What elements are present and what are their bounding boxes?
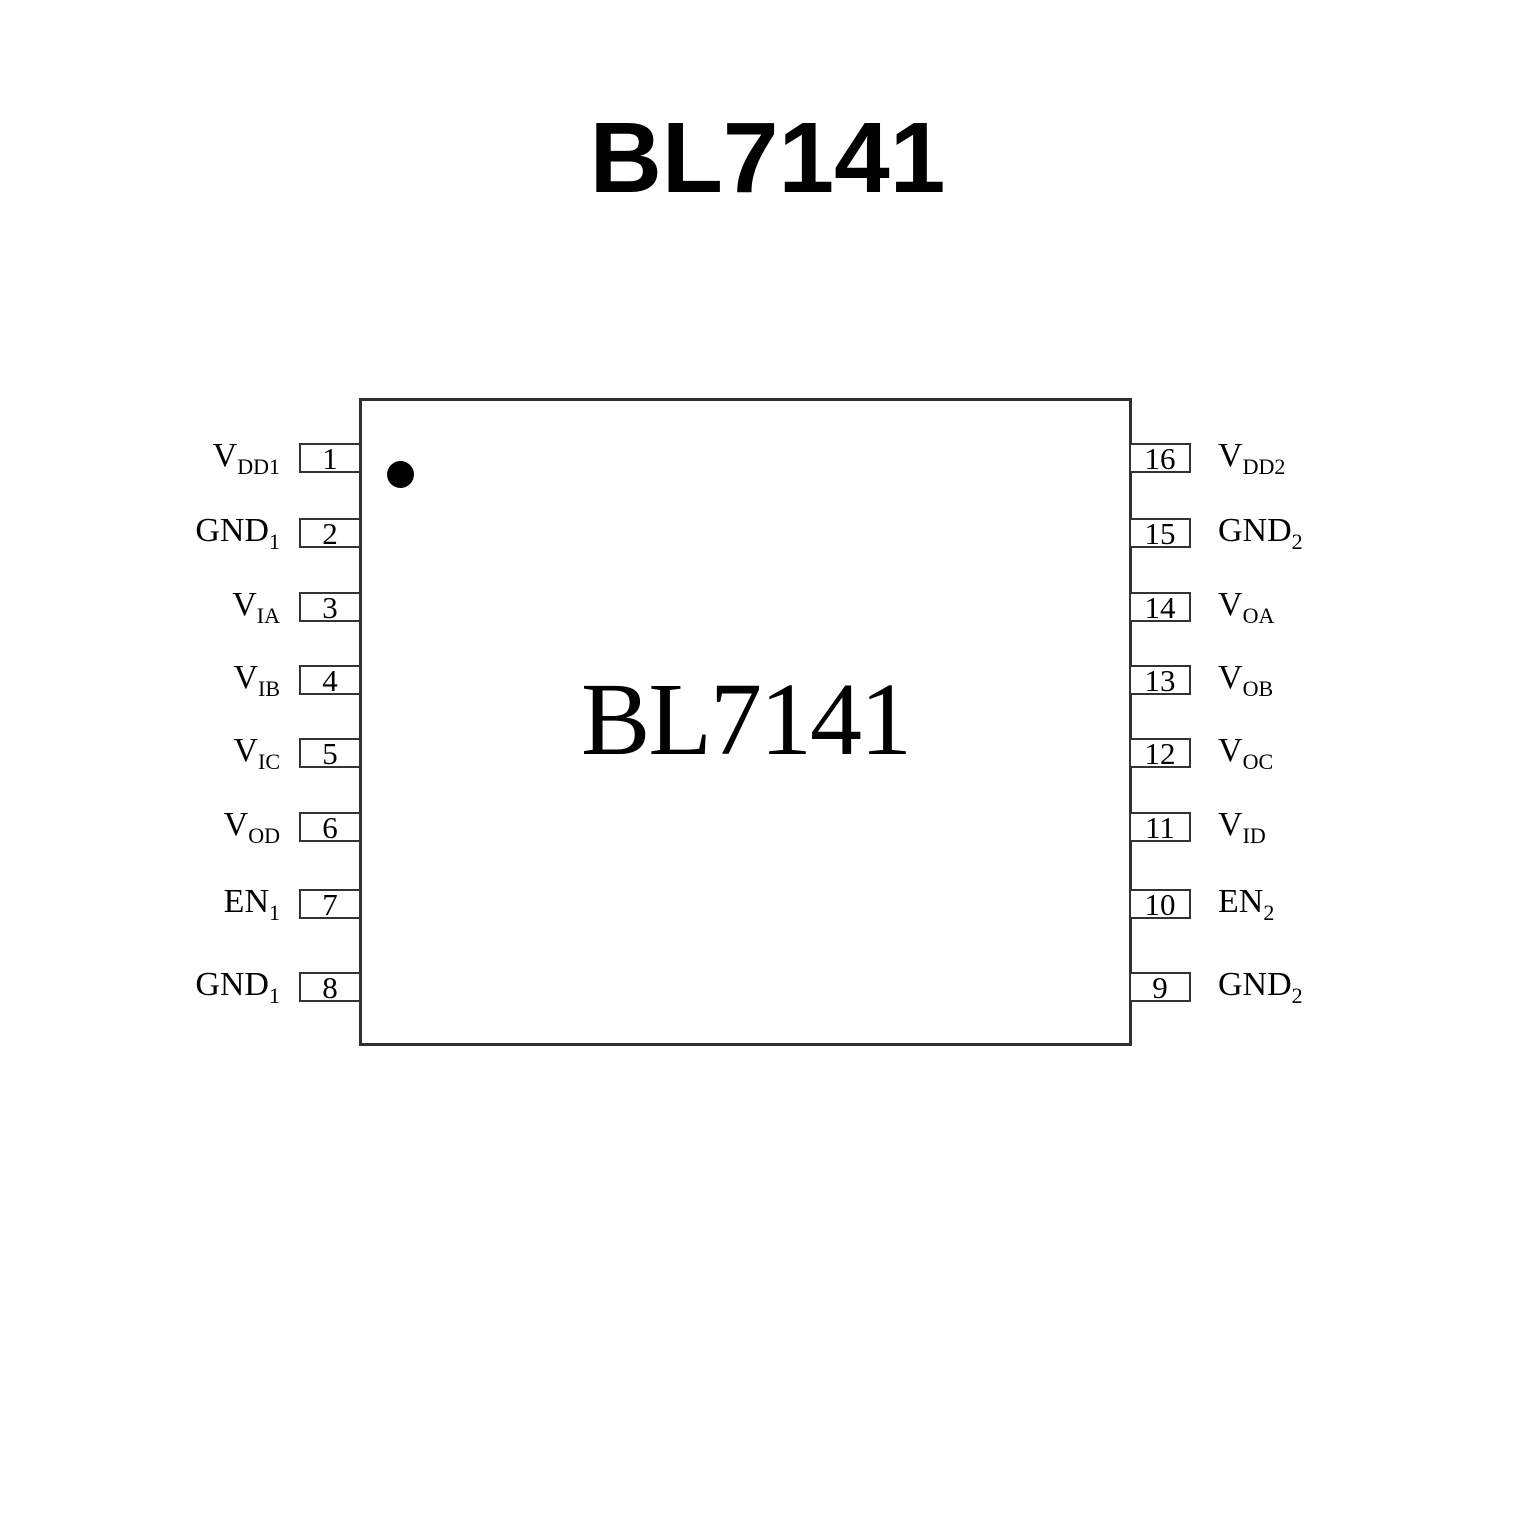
pin-name: GND1 [195,514,280,553]
pin-name-sub: OA [1243,602,1275,627]
pin-number-box: 7 [299,889,361,919]
pin-number: 5 [322,738,338,769]
pin-name-main: V [1218,806,1243,843]
pin-name: VIB [233,661,280,700]
pin-row-1: VDD1 1 [0,443,361,473]
pin-number: 14 [1145,592,1176,623]
pin-name-main: GND [195,966,269,1003]
pin-name: VOB [1218,661,1273,700]
pin-name: GND2 [1218,514,1303,553]
pin-number-box: 1 [299,443,361,473]
pin-name-main: V [1218,732,1243,769]
pin-name-main: V [1218,437,1243,474]
pin-name-main: GND [195,512,269,549]
pin-row-5: VIC 5 [0,738,361,768]
pin-number: 7 [322,889,338,920]
pin-name-sub: 2 [1263,899,1274,924]
pin-row-8: GND1 8 [0,972,361,1002]
pin-name-sub: OB [1243,675,1274,700]
pin-row-11: 11 VID [1129,812,1535,842]
pin-name-main: V [1218,659,1243,696]
pin-number: 9 [1152,972,1168,1003]
pin-row-2: GND1 2 [0,518,361,548]
pin-name: VOC [1218,734,1273,773]
pin-row-6: VOD 6 [0,812,361,842]
pin-number: 11 [1145,812,1175,843]
pin-name: VID [1218,808,1266,847]
pin-name-main: V [232,586,257,623]
pin-number-box: 10 [1129,889,1191,919]
pin-number: 10 [1145,889,1176,920]
pin-name-main: V [1218,586,1243,623]
chip-label: BL7141 [581,668,910,772]
pin-name: VIC [233,734,280,773]
pin-row-16: 16 VDD2 [1129,443,1535,473]
pin-name: VIA [232,588,280,627]
pin-name: VOD [224,808,280,847]
pin-number: 3 [322,592,338,623]
pin-number-box: 13 [1129,665,1191,695]
pin-number-box: 2 [299,518,361,548]
pin-name-sub: OD [248,822,280,847]
pin-number-box: 4 [299,665,361,695]
pin-name-main: V [213,437,238,474]
pin-number: 6 [322,812,338,843]
pin-number-box: 5 [299,738,361,768]
pin-name-sub: 1 [269,528,280,553]
pin-name-sub: IA [257,602,280,627]
pin-number-box: 8 [299,972,361,1002]
pin-number: 8 [322,972,338,1003]
pin-name: VOA [1218,588,1274,627]
pin-name-sub: 1 [269,982,280,1007]
pin-name-sub: IC [258,748,280,773]
pin-number: 4 [322,665,338,696]
pin-name-sub: 1 [269,899,280,924]
pin-number-box: 6 [299,812,361,842]
pinout-page: BL7141 BL7141 VDD1 1 GND1 2 VIA 3 VIB 4 … [0,0,1535,1535]
pin-name-main: V [233,659,258,696]
pin-name-main: V [224,806,249,843]
pin-number: 12 [1145,738,1176,769]
pin-row-7: EN1 7 [0,889,361,919]
pin-name: GND2 [1218,968,1303,1007]
pin-row-10: 10 EN2 [1129,889,1535,919]
pin-name-sub: OC [1243,748,1274,773]
pin-row-13: 13 VOB [1129,665,1535,695]
pin-number-box: 11 [1129,812,1191,842]
pin-number: 13 [1145,665,1176,696]
chip-body: BL7141 [359,398,1132,1046]
pin-number-box: 14 [1129,592,1191,622]
pin-row-4: VIB 4 [0,665,361,695]
pin-number: 2 [322,518,338,549]
pin-name: VDD2 [1218,439,1285,478]
pin1-indicator-dot-icon [387,461,414,488]
pin-number-box: 3 [299,592,361,622]
pin-number-box: 12 [1129,738,1191,768]
pin-name: VDD1 [213,439,280,478]
pin-number: 16 [1145,443,1176,474]
pin-row-12: 12 VOC [1129,738,1535,768]
pin-number-box: 15 [1129,518,1191,548]
pin-row-9: 9 GND2 [1129,972,1535,1002]
pin-name-sub: 2 [1292,528,1303,553]
pin-number: 15 [1145,518,1176,549]
pin-name-main: EN [224,883,269,920]
pin-name-sub: DD2 [1243,453,1286,478]
pinout-diagram: BL7141 VDD1 1 GND1 2 VIA 3 VIB 4 VIC 5 V… [0,0,1535,1535]
pin-name: EN2 [1218,885,1274,924]
pin-name-main: GND [1218,966,1292,1003]
pin-name-main: GND [1218,512,1292,549]
pin-name-main: V [233,732,258,769]
pin-name-sub: DD1 [237,453,280,478]
pin-number: 1 [322,443,338,474]
pin-name: GND1 [195,968,280,1007]
pin-row-14: 14 VOA [1129,592,1535,622]
pin-name-sub: ID [1243,822,1266,847]
pin-name-sub: 2 [1292,982,1303,1007]
pin-number-box: 16 [1129,443,1191,473]
pin-row-3: VIA 3 [0,592,361,622]
pin-name: EN1 [224,885,280,924]
pin-number-box: 9 [1129,972,1191,1002]
pin-name-main: EN [1218,883,1263,920]
pin-row-15: 15 GND2 [1129,518,1535,548]
pin-name-sub: IB [258,675,280,700]
